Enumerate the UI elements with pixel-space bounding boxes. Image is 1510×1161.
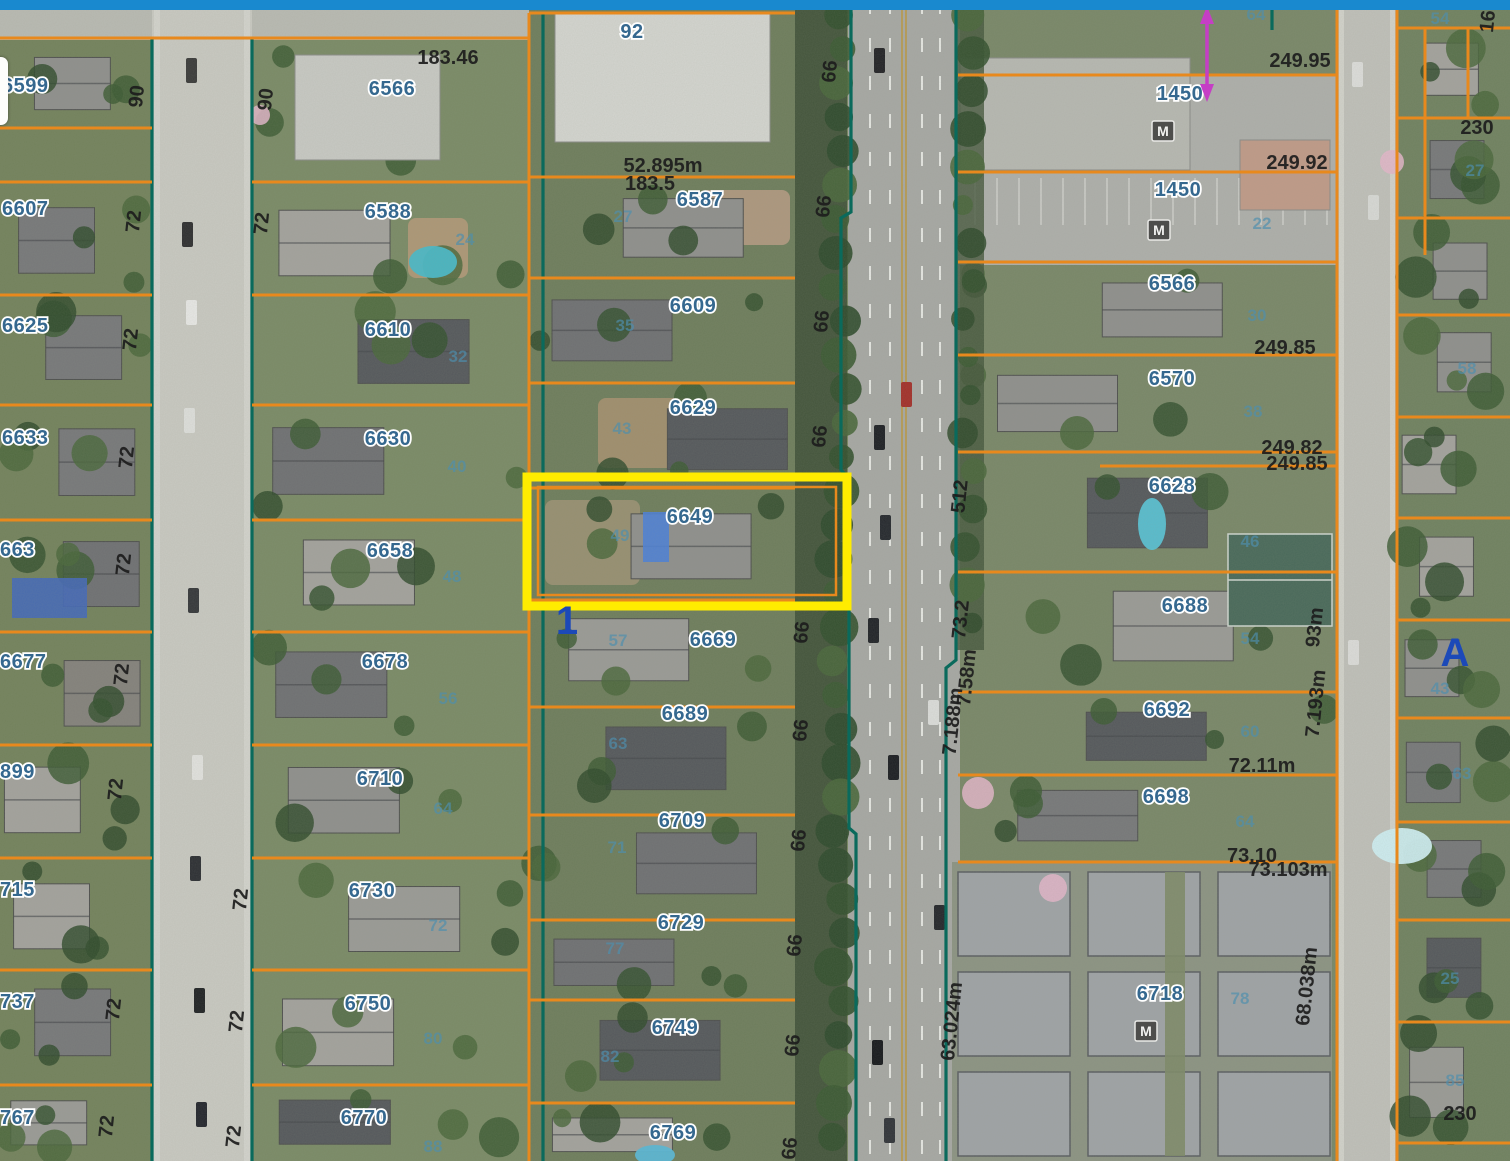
photo-texture-overlay: [0, 0, 1510, 1161]
lot-number-label: 85: [1446, 1071, 1465, 1090]
lot-number-label: 54: [1241, 629, 1260, 648]
measurement-label-rotated: 72: [122, 209, 146, 233]
lot-number-label: 63: [609, 734, 628, 753]
address-label-6658: 6658: [367, 540, 414, 562]
station-icon-letter: M: [1153, 222, 1165, 238]
measurement-label-rotated: 66: [818, 59, 842, 83]
measurement-label-rotated: 66: [789, 718, 813, 742]
address-label-6729: 6729: [658, 912, 705, 934]
address-label-6749: 6749: [652, 1017, 699, 1039]
lot-number-label: 54: [1431, 9, 1450, 28]
measurement-label-rotated: 72: [225, 1009, 249, 1033]
window-top-bar: [0, 0, 1510, 10]
lot-number-label: 35: [616, 316, 635, 335]
lot-number-label: 48: [443, 567, 462, 586]
map-popup-fragment: [0, 57, 8, 125]
address-label-6630: 6630: [365, 428, 412, 450]
aerial-map-canvas[interactable]: 6599660766256633663667789971573776765666…: [0, 0, 1510, 1161]
measurement-label-rotated: 66: [808, 424, 832, 448]
address-label-6609: 6609: [670, 295, 717, 317]
address-label-6769: 6769: [650, 1122, 697, 1144]
measurement-label-rotated: 72: [110, 662, 134, 686]
address-label-663: 663: [0, 539, 35, 561]
measurement-label: 72.11m: [1229, 755, 1296, 777]
lot-number-label: 24: [456, 230, 475, 249]
lot-number-label: 27: [614, 207, 633, 226]
address-label-6566: 6566: [1149, 273, 1196, 295]
measurement-label: 183.5: [625, 173, 675, 195]
lot-number-label: 43: [613, 419, 632, 438]
measurement-label-rotated: 93m: [1302, 606, 1328, 648]
measurement-label: 249.92: [1266, 152, 1327, 174]
address-label-6750: 6750: [345, 993, 392, 1015]
block-letter-A: A: [1441, 631, 1470, 675]
transit-station-icon: M: [1152, 121, 1174, 141]
address-label-6709: 6709: [659, 810, 706, 832]
lot-number-label: 30: [1248, 306, 1267, 325]
lot-number-label: 72: [429, 916, 448, 935]
address-label-6770: 6770: [341, 1107, 388, 1129]
address-label-6610: 6610: [365, 319, 412, 341]
measurement-label: 249.95: [1269, 50, 1330, 72]
address-label-6718: 6718: [1137, 983, 1184, 1005]
address-label-715: 715: [0, 879, 35, 901]
lot-number-label: 60: [1241, 722, 1260, 741]
measurement-label-rotated: 66: [790, 620, 814, 644]
station-icon-letter: M: [1157, 123, 1169, 139]
address-label-899: 899: [0, 761, 35, 783]
lot-number-label: 49: [611, 526, 630, 545]
lot-number-label: 57: [609, 631, 628, 650]
lot-number-label: 27: [1466, 161, 1485, 180]
lot-number-label: 88: [424, 1137, 443, 1156]
lot-number-label: 80: [424, 1029, 443, 1048]
address-label-6629: 6629: [670, 397, 717, 419]
address-label-6607: 6607: [2, 198, 49, 220]
measurement-label: 73.103m: [1249, 859, 1328, 881]
lot-number-label: 25: [1441, 969, 1460, 988]
lot-number-label: 77: [606, 939, 625, 958]
measurement-label-rotated: 66: [778, 1136, 802, 1160]
address-label-6566: 6566: [369, 78, 416, 100]
lot-number-label: 58: [1458, 359, 1477, 378]
lot-number-label: 63: [1453, 764, 1472, 783]
measurement-label-rotated: 66: [810, 309, 834, 333]
address-label-6633: 6633: [2, 427, 49, 449]
block-letter-1: 1: [556, 599, 578, 643]
address-label-6599: 6599: [2, 75, 49, 97]
measurement-label-rotated: 72: [115, 445, 139, 469]
address-label-6625: 6625: [2, 315, 49, 337]
measurement-label-rotated: 72: [229, 887, 253, 911]
address-label-6587: 6587: [677, 189, 724, 211]
measurement-label: 249.85: [1266, 453, 1327, 475]
lot-number-label: 43: [1431, 679, 1450, 698]
transit-station-icon: M: [1148, 220, 1170, 240]
lot-number-label: 38: [1244, 402, 1263, 421]
lot-number-label: 22: [1253, 214, 1272, 233]
measurement-label-rotated: 66: [787, 828, 811, 852]
measurement-label-rotated: 66: [783, 933, 807, 957]
measurement-label-rotated: 72: [112, 552, 136, 576]
measurement-label-rotated: 73.2: [948, 599, 974, 640]
address-label-6698: 6698: [1143, 786, 1190, 808]
transit-station-icon: M: [1135, 1021, 1157, 1041]
measurement-label-rotated: 72: [102, 997, 126, 1021]
lot-number-label: 46: [1241, 532, 1260, 551]
address-label-1450: 1450: [1155, 179, 1202, 201]
measurement-label-rotated: 16: [1476, 9, 1500, 33]
measurement-label-rotated: 66: [781, 1033, 805, 1057]
measurement-label-rotated: 72: [250, 211, 274, 235]
lot-number-label: 82: [601, 1047, 620, 1066]
lot-number-label: 64: [1236, 812, 1255, 831]
address-label-6688: 6688: [1162, 595, 1209, 617]
measurement-label-rotated: 72: [95, 1114, 119, 1138]
address-label-6710: 6710: [357, 768, 404, 790]
measurement-label-rotated: 72: [104, 777, 128, 801]
address-label-1450: 1450: [1157, 83, 1204, 105]
measurement-label-rotated: 72: [222, 1124, 246, 1148]
measurement-label: 183.46: [417, 47, 478, 69]
address-label-6649: 6649: [667, 506, 714, 528]
address-label-92: 92: [620, 21, 643, 43]
station-icon-letter: M: [1140, 1023, 1152, 1039]
address-label-6677: 6677: [0, 651, 47, 673]
measurement-label: 249.85: [1254, 337, 1315, 359]
measurement-label-rotated: 72: [119, 327, 143, 351]
measurement-label: 230: [1460, 117, 1493, 139]
address-label-6730: 6730: [349, 880, 396, 902]
lot-number-label: 32: [449, 347, 468, 366]
address-label-6678: 6678: [362, 651, 409, 673]
measurement-label-rotated: 90: [254, 87, 278, 111]
address-label-6689: 6689: [662, 703, 709, 725]
measurement-label-rotated: 90: [125, 84, 149, 108]
lot-number-label: 40: [448, 457, 467, 476]
address-label-6669: 6669: [690, 629, 737, 651]
address-label-767: 767: [0, 1107, 35, 1129]
lot-number-label: 71: [608, 838, 627, 857]
lot-number-label: 64: [434, 799, 453, 818]
lot-number-label: 78: [1231, 989, 1250, 1008]
address-label-737: 737: [0, 991, 35, 1013]
map-viewport[interactable]: 6599660766256633663667789971573776765666…: [0, 0, 1510, 1161]
address-label-6588: 6588: [365, 201, 412, 223]
measurement-label-rotated: 66: [812, 194, 836, 218]
address-label-6570: 6570: [1149, 368, 1196, 390]
measurement-label: 230: [1443, 1103, 1476, 1125]
measurement-label-rotated: 512: [947, 479, 972, 514]
address-label-6628: 6628: [1149, 475, 1196, 497]
address-label-6692: 6692: [1144, 699, 1191, 721]
lot-number-label: 56: [439, 689, 458, 708]
